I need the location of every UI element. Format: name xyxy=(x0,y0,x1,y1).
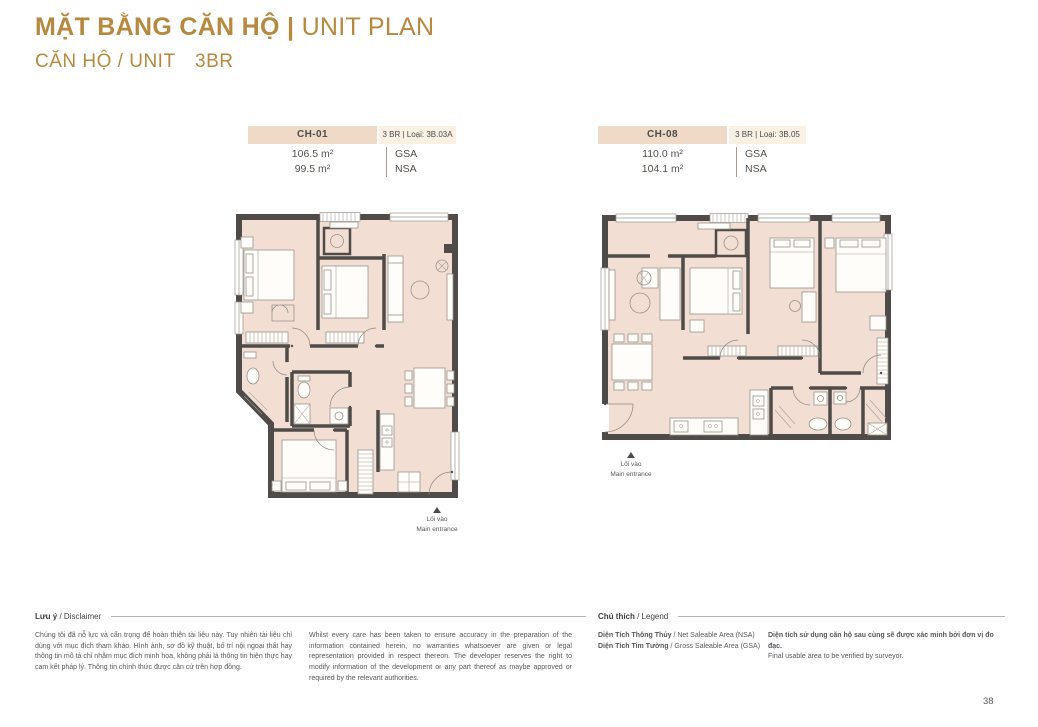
unit2-header: CH-08 3 BR | Loại: 3B.05 xyxy=(598,126,806,144)
subtitle-type: 3BR xyxy=(195,51,233,72)
unit2-nsa-value: 104.1 m² xyxy=(598,162,727,177)
disclaimer-text-vi: Chúng tôi đã nỗ lực và cẩn trọng để hoàn… xyxy=(35,631,292,674)
entrance-label-en: Main entrance xyxy=(600,470,662,480)
divider-line xyxy=(111,616,586,617)
disclaimer-heading-vi: Lưu ý xyxy=(35,612,57,621)
page-title: MẶT BẰNG CĂN HỘ | UNIT PLAN xyxy=(35,13,434,42)
page-title-en: UNIT PLAN xyxy=(302,13,435,41)
unit1-nsa-label: NSA xyxy=(395,162,417,177)
unit2-gsa-value: 110.0 m² xyxy=(598,147,727,162)
entrance-label-vi: Lối vào xyxy=(406,515,468,525)
legend-note-en: Final usable area to be verified by surv… xyxy=(768,652,1008,663)
disclaimer-text-en: Whilst every care has been taken to ensu… xyxy=(309,631,572,684)
dining-table xyxy=(405,368,454,408)
legend-item-nsa: Diện Tích Thông Thủy / Net Saleable Area… xyxy=(598,631,766,642)
page-number: 38 xyxy=(983,696,994,707)
unit2-code: CH-08 xyxy=(598,126,727,144)
entrance-label-en: Main entrance xyxy=(406,525,468,535)
bed-3 xyxy=(272,440,347,492)
unit1-nsa-value: 99.5 m² xyxy=(248,162,377,177)
legend-items: Diện Tích Thông Thủy / Net Saleable Area… xyxy=(598,631,766,652)
entrance-arrow-icon xyxy=(627,452,635,458)
unit1-code: CH-01 xyxy=(248,126,377,144)
unit1-header: CH-01 3 BR | Loại: 3B.03A xyxy=(248,126,456,144)
legend-item-gsa: Diện Tích Tim Tường / Gross Saleable Are… xyxy=(598,642,766,653)
unit2-areas: 110.0 m² 104.1 m² GSA NSA xyxy=(598,147,767,177)
ac-ledge xyxy=(444,244,455,253)
unit1-gsa-label: GSA xyxy=(395,147,417,162)
disclaimer-heading-en: / Disclaimer xyxy=(57,612,101,621)
corridor-vent-ch08 xyxy=(710,214,748,223)
unit1-areas: 106.5 m² 99.5 m² GSA NSA xyxy=(248,147,417,177)
page-subtitle: CĂN HỘ / UNIT 3BR xyxy=(35,51,233,73)
entrance-label-vi: Lối vào xyxy=(600,460,662,470)
unit2-entrance: Lối vào Main entrance xyxy=(600,452,662,480)
unit-plan-page: MẶT BẰNG CĂN HỘ | UNIT PLAN CĂN HỘ / UNI… xyxy=(0,0,1038,727)
legend-note-vi: Diện tích sử dụng căn hộ sau cùng sẽ đượ… xyxy=(768,632,994,650)
unit2-gsa-label: GSA xyxy=(745,147,767,162)
subtitle-unit: CĂN HỘ / UNIT xyxy=(35,51,175,72)
divider-line xyxy=(678,616,1005,617)
entrance-arrow-icon xyxy=(433,507,441,513)
unit2-nsa-label: NSA xyxy=(745,162,767,177)
unit1-type: 3 BR | Loại: 3B.03A xyxy=(379,126,456,144)
unit2-type: 3 BR | Loại: 3B.05 xyxy=(729,126,806,144)
unit1-gsa-value: 106.5 m² xyxy=(248,147,377,162)
legend-heading-vi: Chú thích xyxy=(598,612,635,621)
unit1-entrance: Lối vào Main entrance xyxy=(406,507,468,535)
dining-table-ch08 xyxy=(612,334,652,390)
ac-ledge-ch08 xyxy=(868,423,887,435)
legend-heading-en: / Legend xyxy=(635,612,668,621)
page-title-vi: MẶT BẰNG CĂN HỘ | xyxy=(35,13,294,41)
corridor-vent-ch01 xyxy=(320,213,360,222)
floorplan-ch08 xyxy=(598,208,895,444)
floorplan-ch01 xyxy=(232,210,462,498)
disclaimer-heading: Lưu ý / Disclaimer xyxy=(35,612,586,621)
legend-heading: Chú thích / Legend xyxy=(598,612,1005,621)
legend-note: Diện tích sử dụng căn hộ sau cùng sẽ đượ… xyxy=(768,631,1008,663)
